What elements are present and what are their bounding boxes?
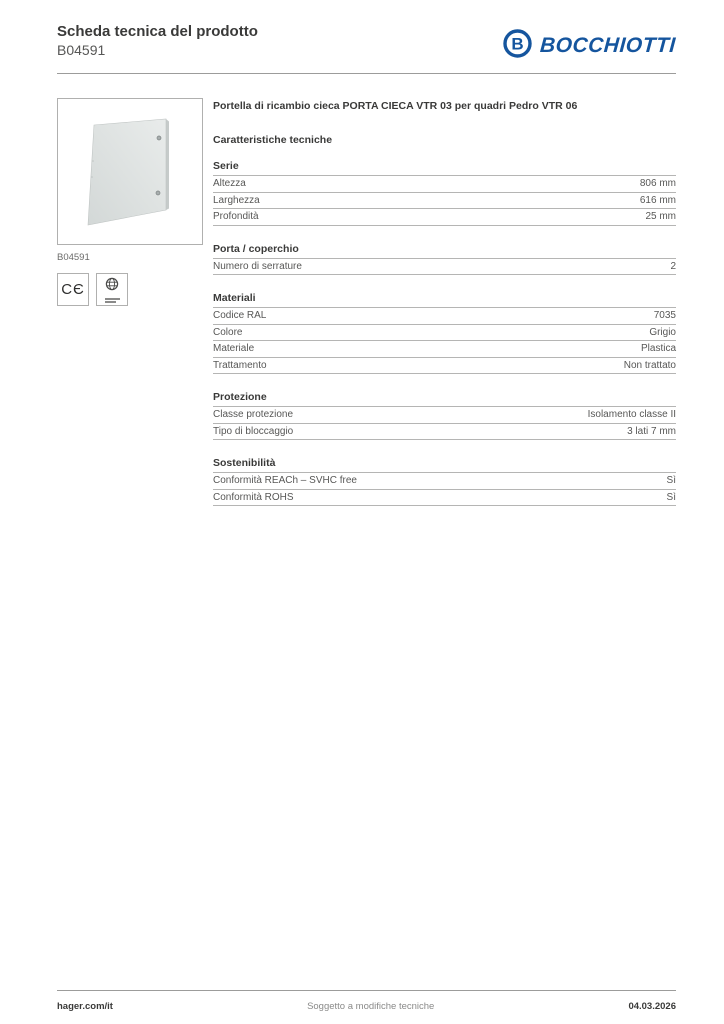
section-rows: Classe protezione Isolamento classe II T…	[213, 407, 676, 440]
header-titles: Scheda tecnica del prodotto B04591	[57, 22, 258, 59]
spec-row: Colore Grigio	[213, 325, 676, 342]
spec-value: Isolamento classe II	[588, 409, 676, 420]
spec-value: 616 mm	[640, 195, 676, 206]
spec-label: Colore	[213, 327, 242, 338]
section-title: Serie	[213, 160, 676, 176]
left-column: B04591 CЄ	[57, 98, 203, 523]
spec-value: 7035	[654, 310, 676, 321]
spec-section: Serie Altezza 806 mm Larghezza 616 mm Pr…	[213, 160, 676, 226]
ce-mark: CЄ	[57, 273, 89, 306]
spec-row: Classe protezione Isolamento classe II	[213, 407, 676, 424]
product-image	[57, 98, 203, 245]
spec-label: Profondità	[213, 211, 259, 222]
certification-mark	[96, 273, 128, 306]
certification-marks: CЄ	[57, 273, 203, 306]
spec-label: Conformità REACh – SVHC free	[213, 475, 357, 486]
svg-text:B: B	[512, 35, 524, 54]
spec-value: Sì	[667, 492, 676, 503]
spec-label: Codice RAL	[213, 310, 266, 321]
spec-value: 3 lati 7 mm	[627, 426, 676, 437]
spec-label: Materiale	[213, 343, 254, 354]
spec-label: Conformità ROHS	[213, 492, 294, 503]
spec-label: Larghezza	[213, 195, 260, 206]
spec-sections: Serie Altezza 806 mm Larghezza 616 mm Pr…	[213, 160, 676, 506]
spec-row: Trattamento Non trattato	[213, 358, 676, 375]
section-title: Materiali	[213, 292, 676, 308]
spec-label: Classe protezione	[213, 409, 293, 420]
product-title: Portella di ricambio cieca PORTA CIECA V…	[213, 100, 676, 113]
certification-globe-icon	[105, 277, 119, 296]
spec-value: 806 mm	[640, 178, 676, 189]
spec-label: Trattamento	[213, 360, 267, 371]
spec-section: Protezione Classe protezione Isolamento …	[213, 391, 676, 440]
brand-logo-icon: B	[502, 28, 533, 64]
datasheet-page: Scheda tecnica del prodotto B04591 B BOC…	[0, 0, 724, 1024]
spec-value: Plastica	[641, 343, 676, 354]
ce-mark-icon: CЄ	[61, 281, 85, 298]
footer-note: Soggetto a modifiche tecniche	[307, 1001, 434, 1012]
page-title: Scheda tecnica del prodotto	[57, 22, 258, 41]
footer-date: 04.03.2026	[628, 1001, 676, 1012]
spec-row: Conformità REACh – SVHC free Sì	[213, 473, 676, 490]
section-rows: Numero di serrature 2	[213, 259, 676, 276]
specs-heading: Caratteristiche tecniche	[213, 134, 676, 146]
spec-row: Altezza 806 mm	[213, 176, 676, 193]
spec-section: Sostenibilità Conformità REACh – SVHC fr…	[213, 457, 676, 506]
spec-row: Conformità ROHS Sì	[213, 490, 676, 507]
spec-value: Sì	[667, 475, 676, 486]
spec-value: Non trattato	[624, 360, 676, 371]
section-title: Protezione	[213, 391, 676, 407]
main-content: B04591 CЄ	[0, 74, 724, 523]
spec-row: Materiale Plastica	[213, 341, 676, 358]
footer-site: hager.com/it	[57, 1001, 113, 1012]
spec-row: Numero di serrature 2	[213, 259, 676, 276]
spec-value: 25 mm	[645, 211, 676, 222]
brand-logo: B BOCCHIOTTI	[502, 28, 676, 64]
spec-row: Larghezza 616 mm	[213, 193, 676, 210]
section-rows: Altezza 806 mm Larghezza 616 mm Profondi…	[213, 176, 676, 226]
product-image-caption: B04591	[57, 252, 203, 263]
section-rows: Conformità REACh – SVHC free Sì Conformi…	[213, 473, 676, 506]
spec-label: Altezza	[213, 178, 246, 189]
header-product-code: B04591	[57, 41, 258, 59]
spec-row: Tipo di bloccaggio 3 lati 7 mm	[213, 424, 676, 441]
spec-label: Tipo di bloccaggio	[213, 426, 293, 437]
spec-value: 2	[670, 261, 676, 272]
spec-row: Codice RAL 7035	[213, 308, 676, 325]
spec-row: Profondità 25 mm	[213, 209, 676, 226]
specs-column: Portella di ricambio cieca PORTA CIECA V…	[213, 98, 676, 523]
section-rows: Codice RAL 7035 Colore Grigio Materiale …	[213, 308, 676, 374]
section-title: Sostenibilità	[213, 457, 676, 473]
spec-value: Grigio	[649, 327, 676, 338]
spec-section: Materiali Codice RAL 7035 Colore Grigio …	[213, 292, 676, 374]
page-header: Scheda tecnica del prodotto B04591 B BOC…	[0, 0, 724, 64]
section-title: Porta / coperchio	[213, 243, 676, 259]
certification-mark-text-lines	[105, 298, 120, 303]
page-footer: hager.com/it Soggetto a modifiche tecnic…	[57, 990, 676, 1012]
spec-label: Numero di serrature	[213, 261, 302, 272]
spec-section: Porta / coperchio Numero di serrature 2	[213, 243, 676, 276]
brand-logo-text: BOCCHIOTTI	[540, 34, 677, 58]
